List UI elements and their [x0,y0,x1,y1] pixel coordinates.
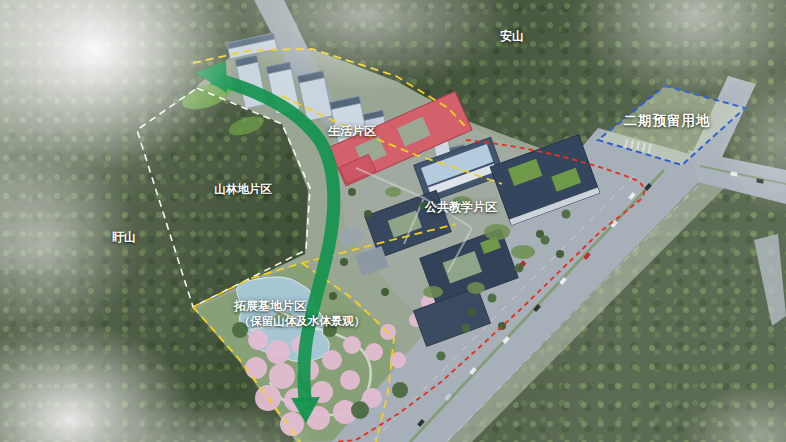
tree [515,264,524,273]
tree [562,210,571,219]
label-expansion-zone-line2: （保留山体及水体景观） [239,314,366,329]
tree [468,308,476,316]
branch-road-southeast [754,234,786,326]
site-overlay [0,0,786,442]
label-an-mountain: 安山 [500,28,524,45]
label-forest-zone: 山林地片区 [214,182,272,197]
tree [348,188,356,196]
label-phase2-reserved: 二期预留用地 [624,112,711,130]
label-teaching-zone: 公共教学片区 [425,199,497,216]
blossom-tree [245,357,267,379]
tree [329,292,337,300]
blossom-tree [340,370,360,390]
tree [364,210,372,218]
label-living-zone: 生活片区 [328,123,376,140]
tree [541,236,550,245]
tree [351,401,369,419]
tree [462,324,471,333]
site-plan-rendering: 安山 盱山 生活片区 山林地片区 公共教学片区 二期预留用地 拓展基地片区 （保… [0,0,786,442]
blossom-tree [343,336,361,354]
blossom-tree [266,340,290,364]
lawn [226,113,265,139]
blossom-tree [365,343,383,361]
blossom-tree [322,350,342,370]
tree [488,294,497,303]
blossom-tree [280,412,304,436]
blossom-tree [269,363,295,389]
label-xu-mountain: 盱山 [112,229,136,246]
tree [556,250,564,258]
tree [392,382,408,398]
blossom-tree [248,330,268,350]
tree [381,288,389,296]
tree [340,258,348,266]
tree [437,352,446,361]
label-expansion-zone-line1: 拓展基地片区 [234,298,306,315]
